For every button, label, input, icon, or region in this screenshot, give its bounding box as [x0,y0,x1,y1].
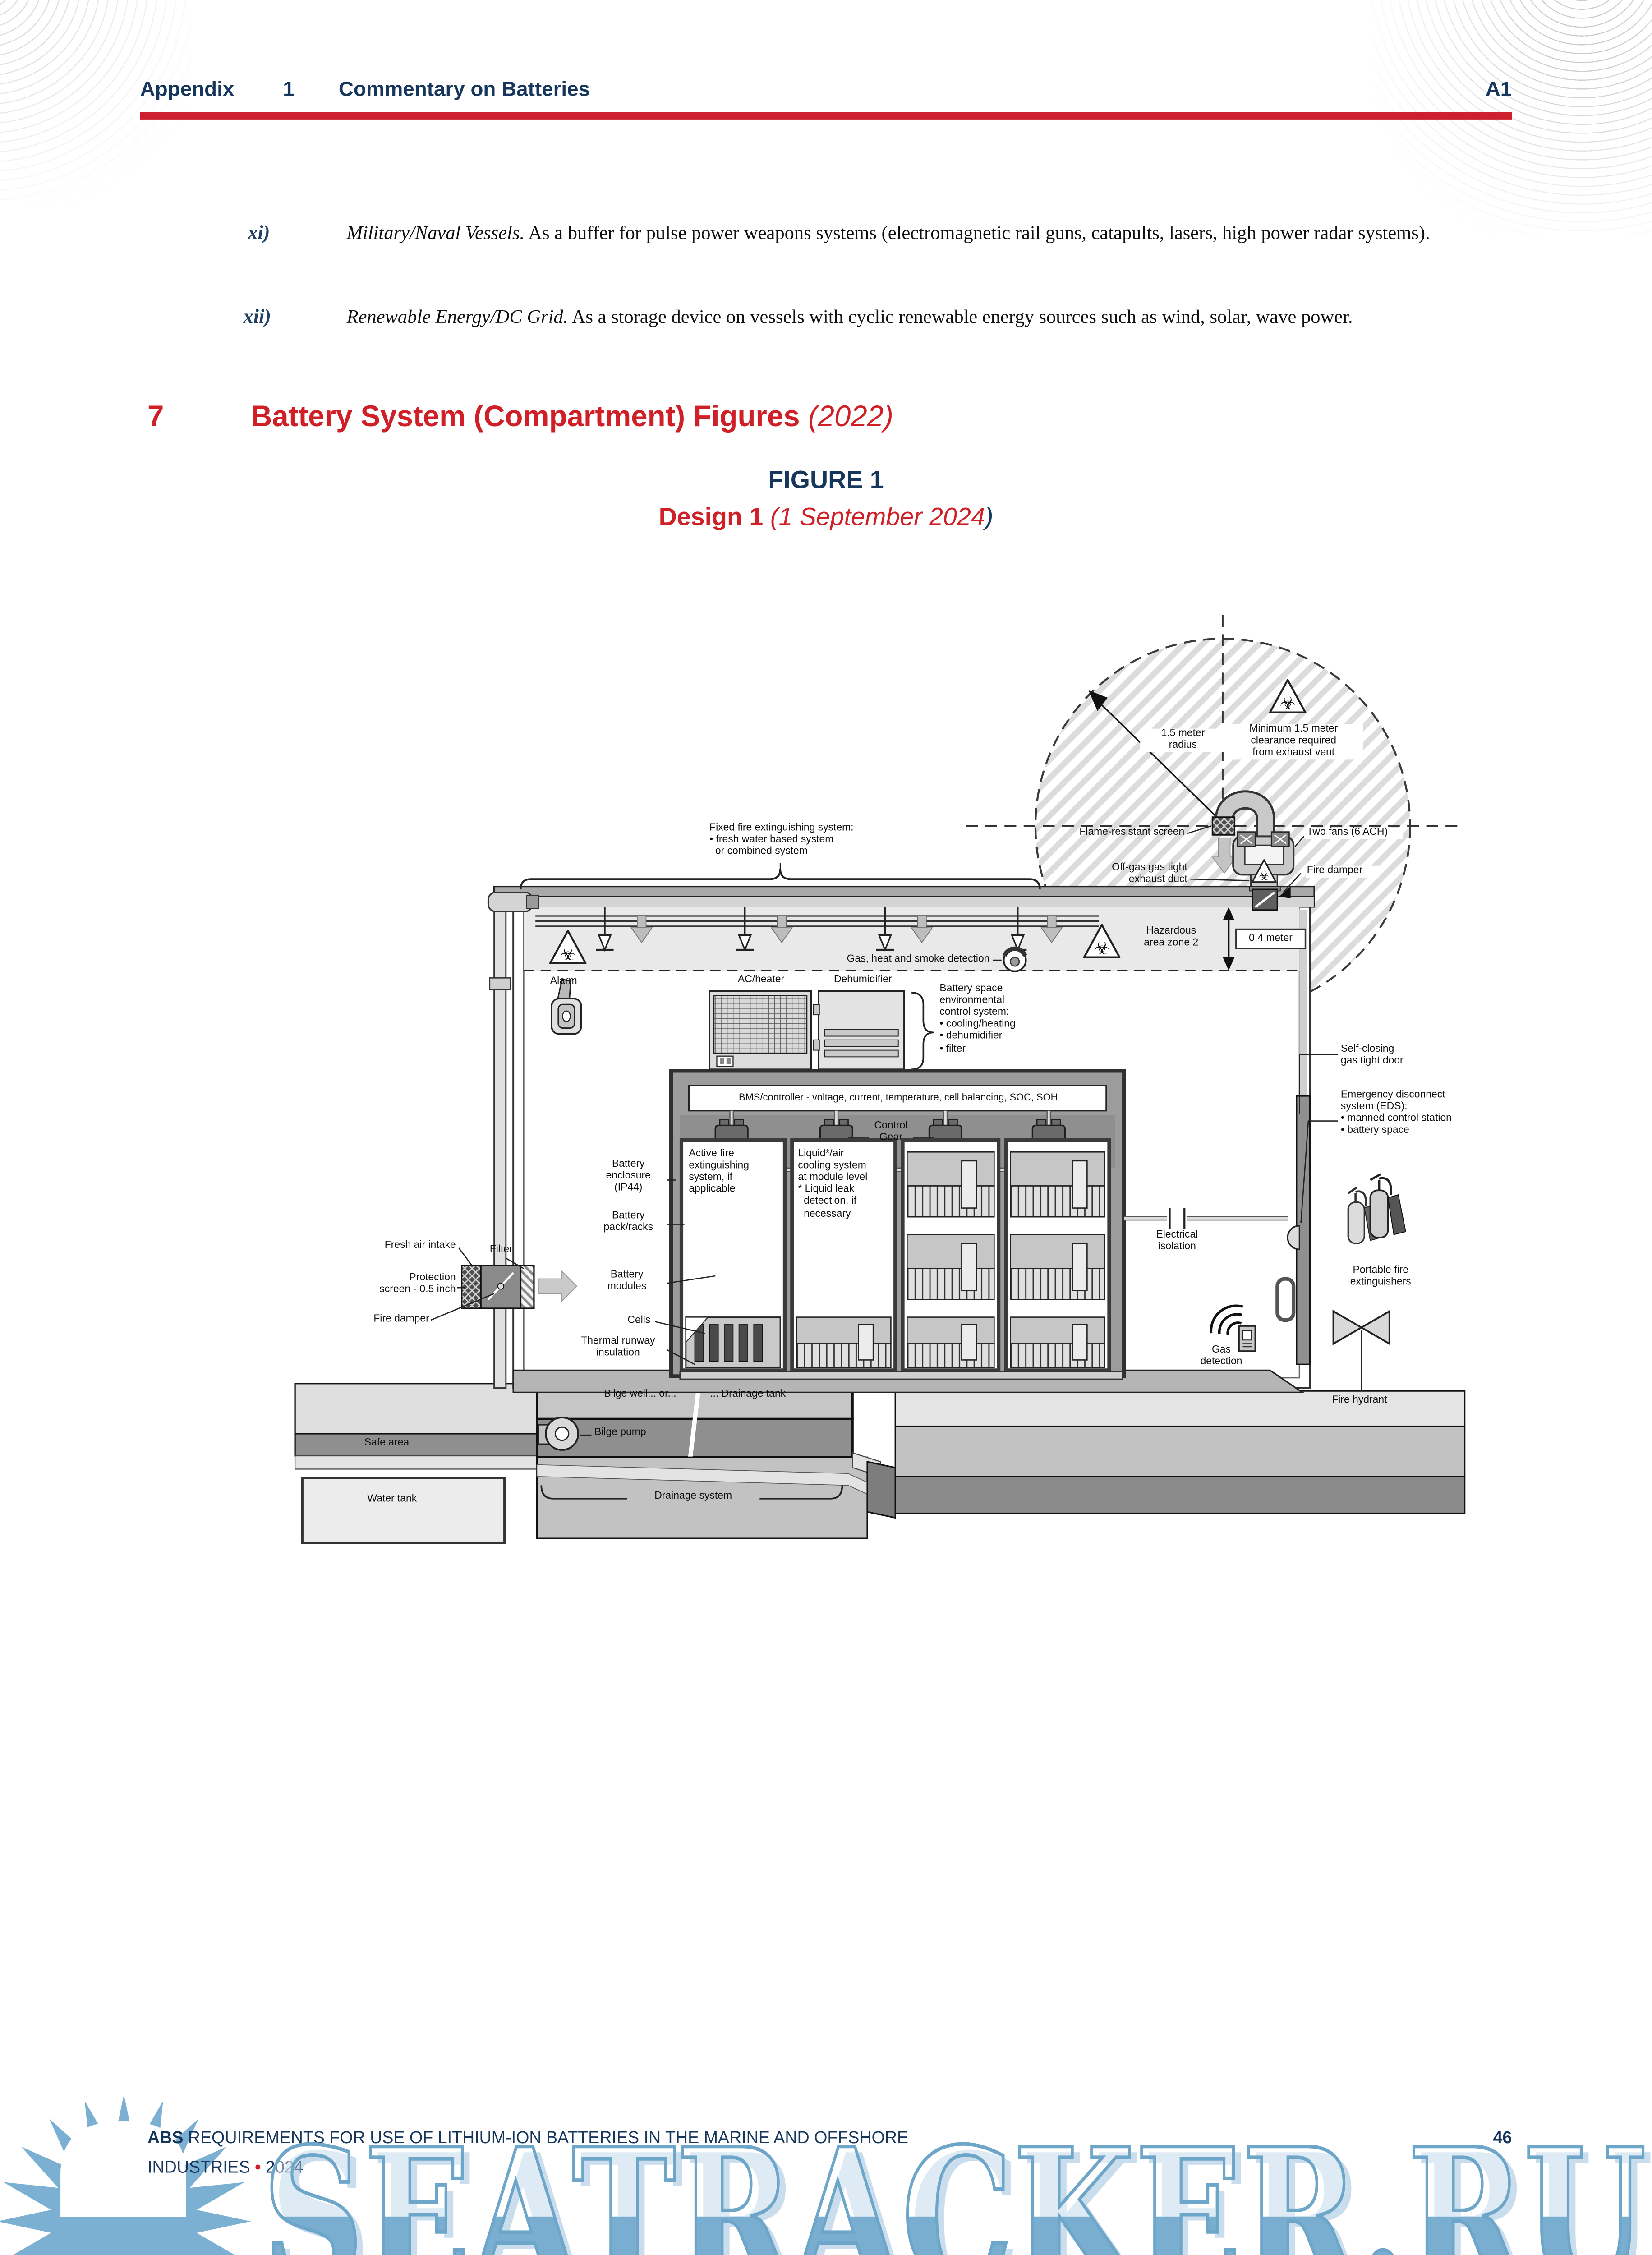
water-tank [302,1478,504,1543]
filter-element [520,1266,534,1308]
section-title-text: Battery System (Compartment) Figures [251,401,800,434]
label-gas-heat-smoke: Gas, heat and smoke detection [813,954,989,966]
label-bilge-well: Bilge well... or... [575,1390,705,1402]
list-marker: xii) [244,305,320,329]
label-04-meter: 0.4 meter [1238,934,1304,946]
label-fire-damper-top: Fire damper [1305,866,1379,878]
list-lead: Military/Naval Vessels. [347,221,525,244]
label-drainage-tank: ... Drainage tank [687,1390,808,1402]
label-gas-detection: Gas detection [1187,1345,1255,1369]
figure-label: FIGURE 1 [140,466,1512,495]
battery-module [907,1317,994,1367]
document-page: Appendix 1 Commentary on Batteries A1 xi… [0,0,1652,2255]
battery-compartment-diagram: ☣ ☣ ☣ ☣ [273,612,1497,1571]
battery-module [1010,1152,1104,1217]
figure-date: (1 September 2024 [770,503,985,531]
label-fresh-air: Fresh air intake [353,1241,456,1253]
battery-module [907,1152,994,1217]
label-clearance: Minimum 1.5 meter clearance required fro… [1224,724,1363,760]
label-eds: Emergency disconnect system (EDS): • man… [1341,1090,1477,1138]
section-year: (2022) [800,401,893,434]
ground-structure [295,1384,1465,1543]
label-safe-area: Safe area [364,1438,432,1450]
fire-extinguisher-icon [1370,1174,1405,1238]
header-page-code: A1 [1486,77,1512,100]
watermark-text: SEATRACKER.RU [262,2109,1646,2255]
svg-text:☣: ☣ [1259,870,1269,883]
label-filter: Filter [490,1245,534,1257]
list-text: As a storage device on vessels with cycl… [568,305,1353,327]
label-offgas-duct: Off-gas gas tight exhaust duct [1081,863,1187,887]
list-text: As a buffer for pulse power weapons syst… [525,221,1430,244]
fire-damper-top-icon [1249,887,1280,910]
cells-detail-module [686,1317,780,1367]
battery-module [1010,1317,1104,1367]
fire-hydrant-valve [1334,1312,1390,1391]
svg-text:☣: ☣ [1094,939,1109,959]
list-marker: xi) [248,221,324,245]
svg-text:☣: ☣ [1280,694,1296,714]
label-fire-damper-left: Fire damper [350,1314,429,1326]
battery-cabinet [671,1071,1124,1379]
label-env-control: Battery space environmental control syst… [939,984,1066,1055]
label-radius: 1.5 meter radius [1140,729,1226,753]
ac-heater-unit [709,991,811,1069]
label-bms: BMS/controller - voltage, current, tempe… [692,1092,1105,1104]
label-hazardous-zone: Hazardous area zone 2 [1125,926,1217,950]
label-dehumidifier: Dehumidifier [822,975,904,987]
label-control-gear: Control Gear [865,1121,918,1145]
label-electrical-isolation: Electrical isolation [1134,1230,1220,1254]
label-active-fire: Active fire extinguishing system, if app… [689,1149,780,1197]
header-title: Commentary on Batteries [339,77,590,100]
label-protection-screen: Protection screen - 0.5 inch [326,1273,456,1297]
figure-design: Design 1 [659,503,770,531]
list-lead: Renewable Energy/DC Grid. [347,305,568,327]
page-header: Appendix 1 Commentary on Batteries A1 [140,77,1512,100]
scan-moire-decoration [0,0,192,207]
smoke-detector-icon [1004,949,1026,971]
label-portable-ext: Portable fire extinguishers [1332,1266,1429,1289]
fire-damper-left-icon [481,1266,520,1308]
flame-resistant-screen-icon [1212,817,1234,835]
figure-subtitle: Design 1 (1 September 2024) [140,503,1512,532]
label-fixed-fire-system: Fixed fire extinguishing system: • fresh… [709,823,893,859]
dehumidifier-unit [814,991,904,1069]
list-item: Renewable Energy/DC Grid. As a storage d… [347,299,1491,336]
label-water-tank: Water tank [367,1494,444,1506]
label-drainage-system: Drainage system [627,1491,759,1504]
label-battery-enclosure: Battery enclosure (IP44) [591,1160,665,1196]
label-bilge-pump: Bilge pump [594,1428,668,1440]
roof [494,887,1314,897]
label-cells: Cells [609,1316,651,1328]
label-ac-heater: AC/heater [715,975,807,987]
label-fire-hydrant: Fire hydrant [1332,1395,1408,1408]
label-alarm: Alarm [550,976,609,989]
watermark: SEATRACKER.RU SEATRACKER.RU [0,2109,1652,2255]
battery-module [907,1234,994,1299]
label-self-closing-door: Self-closing gas tight door [1341,1045,1447,1068]
header-rule [140,112,1512,119]
figure-paren: ) [985,503,994,531]
list-item: Military/Naval Vessels. As a buffer for … [347,215,1491,251]
svg-text:☣: ☣ [560,944,576,965]
label-thermal-runaway: Thermal runway insulation [571,1336,665,1360]
header-number: 1 [283,77,294,100]
label-liquid-air: Liquid*/air cooling system at module lev… [798,1149,892,1221]
label-two-fans: Two fans (6 ACH) [1305,828,1403,840]
label-battery-packs: Battery pack/racks [591,1211,665,1235]
section-title: Battery System (Compartment) Figures (20… [251,401,1313,435]
label-flame-screen: Flame-resistant screen [1054,828,1184,840]
label-battery-modules: Battery modules [589,1270,665,1294]
battery-module [1010,1234,1104,1299]
protection-screen [462,1266,481,1308]
battery-module [796,1317,891,1367]
section-number: 7 [147,401,164,435]
page: Appendix 1 Commentary on Batteries A1 xi… [0,0,1652,2255]
header-appendix: Appendix [140,77,235,100]
